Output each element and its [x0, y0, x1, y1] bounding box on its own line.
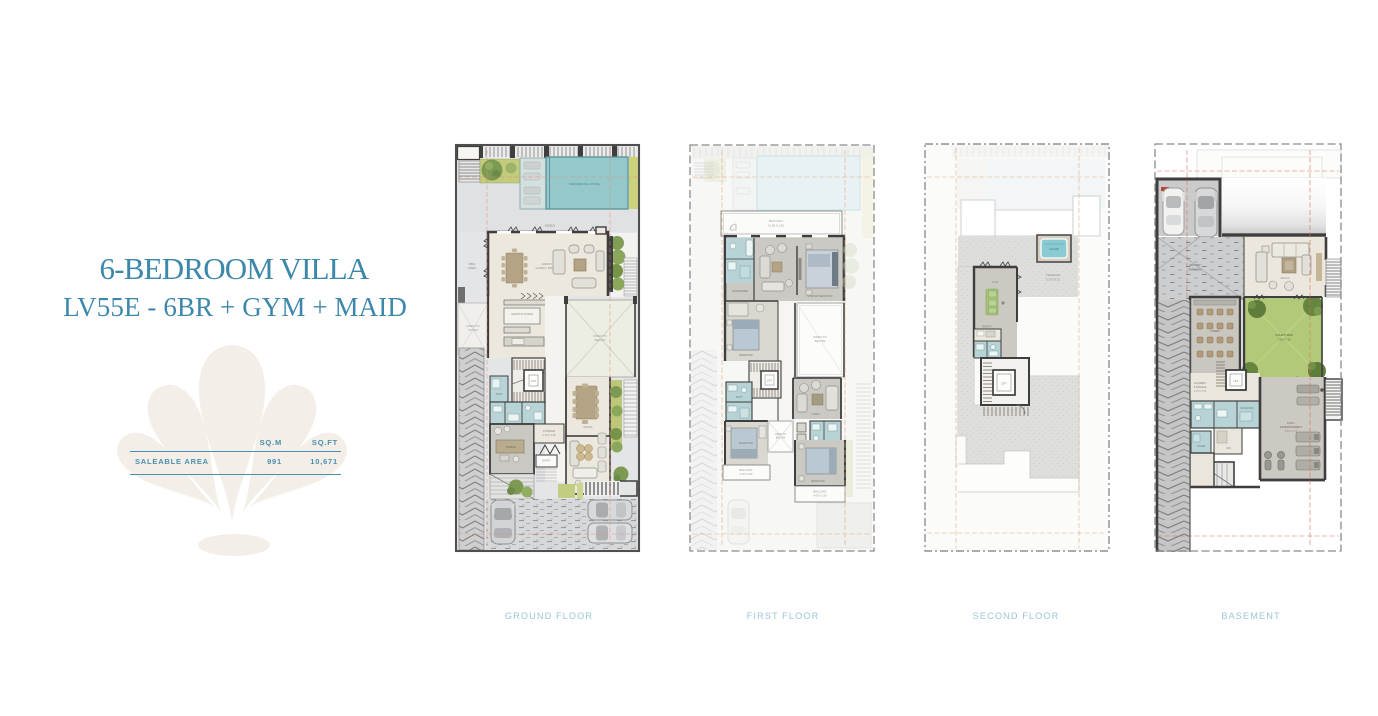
- svg-text:ROOM: ROOM: [468, 328, 478, 332]
- svg-text:POWDER: POWDER: [543, 429, 556, 433]
- svg-text:OPEN TO: OPEN TO: [775, 432, 787, 436]
- svg-text:MASTER BEDROOM: MASTER BEDROOM: [808, 294, 833, 298]
- svg-text:BEDROOM: BEDROOM: [739, 353, 752, 357]
- svg-text:CINEMA: CINEMA: [1210, 330, 1220, 333]
- svg-text:AREA: AREA: [468, 266, 476, 270]
- svg-text:BELOW: BELOW: [815, 339, 826, 343]
- svg-text:MAID: MAID: [496, 392, 503, 396]
- svg-text:7.40 X 7.20: 7.40 X 7.20: [1277, 338, 1291, 342]
- svg-text:STORAGE: STORAGE: [1194, 385, 1207, 389]
- svg-text:4.10 X 1.50: 4.10 X 1.50: [740, 473, 753, 476]
- svg-text:BEDROOM: BEDROOM: [739, 441, 752, 445]
- svg-text:MOTOR: MOTOR: [1189, 263, 1201, 267]
- svg-text:PANTRY: PANTRY: [982, 326, 992, 329]
- svg-text:FAMILY: FAMILY: [812, 413, 821, 416]
- svg-text:PATIO: PATIO: [545, 224, 555, 228]
- svg-text:STORE: STORE: [1197, 445, 1206, 448]
- svg-text:MAJLIS: MAJLIS: [583, 425, 592, 429]
- svg-text:SWIMMING POOL: SWIMMING POOL: [569, 182, 601, 186]
- svg-text:PARKING: PARKING: [1188, 268, 1202, 272]
- svg-text:SHOW KITCHEN: SHOW KITCHEN: [511, 312, 533, 316]
- svg-text:8.00 X 4.75: 8.00 X 4.75: [1285, 430, 1298, 433]
- svg-text:ENTRY: ENTRY: [542, 460, 550, 463]
- svg-text:SPA/SAUNA: SPA/SAUNA: [1240, 407, 1254, 410]
- svg-text:TERRACE: TERRACE: [1046, 273, 1060, 277]
- svg-text:LIFT: LIFT: [1233, 379, 1239, 383]
- svg-text:4.09 X 1.50: 4.09 X 1.50: [814, 495, 827, 498]
- svg-text:3.15 X 3.35: 3.15 X 3.35: [1194, 390, 1207, 393]
- svg-text:BEDROOM: BEDROOM: [811, 479, 824, 483]
- svg-text:GYM: GYM: [992, 281, 998, 284]
- svg-text:LIFT: LIFT: [531, 379, 537, 383]
- svg-text:BALCONY: BALCONY: [769, 219, 783, 223]
- svg-text:BALCONY: BALCONY: [813, 490, 827, 494]
- svg-text:BELOW: BELOW: [595, 338, 606, 342]
- svg-text:LIFT: LIFT: [767, 380, 773, 383]
- svg-text:GYM +: GYM +: [1287, 421, 1296, 425]
- svg-text:OFFICE: OFFICE: [506, 445, 516, 449]
- svg-text:11.95 X 1.80: 11.95 X 1.80: [768, 224, 784, 228]
- svg-text:2.70 X 1.50: 2.70 X 1.50: [542, 433, 556, 437]
- svg-text:LIFT: LIFT: [1001, 382, 1007, 386]
- svg-text:MAJLIS: MAJLIS: [1280, 276, 1289, 280]
- svg-text:W.C.: W.C.: [1226, 447, 1232, 450]
- svg-text:BELOW: BELOW: [776, 436, 786, 440]
- svg-text:BATH: BATH: [736, 396, 742, 399]
- svg-text:ENTERTAINMENT: ENTERTAINMENT: [1280, 425, 1302, 429]
- svg-text:5.75 X 8.10: 5.75 X 8.10: [1046, 278, 1060, 282]
- svg-text:COURTYARD: COURTYARD: [1275, 333, 1292, 337]
- svg-text:LAUNDRY: LAUNDRY: [1194, 381, 1207, 385]
- svg-text:WARD/ROBE: WARD/ROBE: [732, 289, 748, 293]
- svg-text:JACUZZI: JACUZZI: [1049, 248, 1059, 251]
- svg-text:BALCONY: BALCONY: [739, 468, 753, 472]
